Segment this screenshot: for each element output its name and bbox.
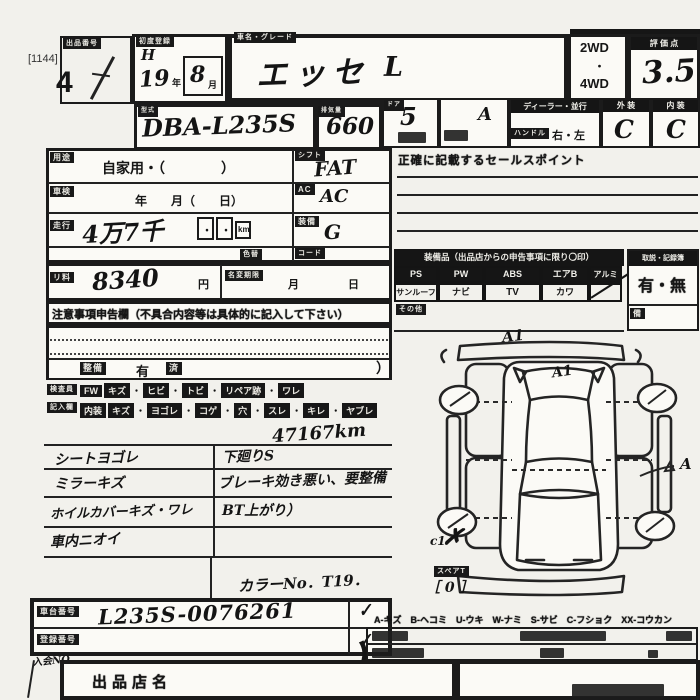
inspector-label-1: 検査員 <box>47 384 77 395</box>
illegible-label-smudge <box>648 650 658 658</box>
mileage-digit-dot: ・ <box>221 222 231 237</box>
print-ref: [1144] <box>28 53 58 65</box>
interior-item: コゲ <box>195 403 221 418</box>
doors-value: 5 <box>400 102 417 131</box>
name-change-label: 名変期限 <box>225 270 263 281</box>
mileage-value: 4万7千 <box>81 211 164 250</box>
grade-value: L <box>384 52 403 83</box>
sales-rule-line <box>397 230 698 232</box>
shift-value: FAT <box>313 155 357 182</box>
exterior-grade-value: C <box>614 115 634 144</box>
code-label: コード <box>295 248 325 259</box>
equipment-abs: ABS <box>484 266 541 283</box>
illegible-label-smudge <box>398 132 426 143</box>
sales-rule-line <box>397 194 698 196</box>
note-left: シートヨゴレ <box>54 447 139 470</box>
info-row-divider <box>48 182 390 184</box>
color-no-tick <box>210 558 212 600</box>
interior-item: スレ <box>264 403 290 418</box>
reg-month-unit: 月 <box>208 78 217 91</box>
ac-value: AC <box>320 186 348 207</box>
drive-2wd-label: 2WD <box>580 40 609 55</box>
mileage-label: 走行 <box>50 220 74 231</box>
registration-number-label: 登録番号 <box>37 634 79 645</box>
capacity-value: A <box>478 104 492 125</box>
equipment-sunroof: サンルーフ <box>394 283 438 302</box>
member-no-stroke <box>27 660 35 698</box>
interior-checklist-row: 内装 キズ ・ ヨゴレ ・ コゲ ・ 穴 ・ スレ ・ キレ ・ ヤブレ <box>80 403 379 418</box>
color-change-label: 色替 <box>240 249 262 260</box>
illegible-label-smudge <box>572 684 664 697</box>
equipment-header: 装備品（出品店からの申告事項に限り〇印） <box>394 249 624 266</box>
info-col-divider <box>292 150 294 261</box>
note-left: 車内ニオイ <box>50 528 121 552</box>
equipment-other-label: その他 <box>396 304 426 315</box>
name-change-month-unit: 月 <box>288 276 299 292</box>
equipment-navi: ナビ <box>438 283 484 302</box>
exhibitor-label: 出品店名 <box>92 671 172 692</box>
auction-sheet: { "top": { "print_ref": "[1144]", "lot_l… <box>0 0 700 700</box>
damage-legend: A-キズ B-ヘコミ U-ウキ W-ナミ S-サビ C-フショク XX-コウカン <box>374 613 672 626</box>
interior-item: ヨゴレ <box>147 403 182 418</box>
remarks-rule <box>50 353 388 355</box>
drive-dot: ・ <box>594 58 605 74</box>
manual-note-label: 備 <box>630 308 645 319</box>
recycle-fee-value: 8340 <box>91 263 160 297</box>
recycle-fee-label: リ料 <box>50 272 74 283</box>
color-no-note: カラーNo．T19． <box>238 569 370 597</box>
lot-number-label: 出品番号 <box>63 38 101 49</box>
equipment-pw: PW <box>438 266 484 283</box>
reg-era-value: H <box>141 46 155 64</box>
interior-grade-label: 内 装 <box>653 100 698 112</box>
note-right: ブレーキ効き悪い、要整備 <box>218 467 387 493</box>
fw-checklist-row: FW キズ ・ ヒビ ・ トビ ・ リペア跡 ・ ワレ <box>80 383 306 398</box>
notes-rule <box>44 526 392 528</box>
mileage-unit: km <box>238 225 250 234</box>
fw-item: キズ <box>104 383 130 398</box>
maintenance-value2: 済 <box>166 362 182 375</box>
shaken-label: 車検 <box>50 186 74 197</box>
equipment-slash-mark: ／ <box>590 261 624 308</box>
reg-year-value: 19 <box>138 65 170 93</box>
repair-close-paren: ） <box>376 358 390 378</box>
score-value: 3.5 <box>641 53 697 92</box>
repair-row-divider <box>48 358 390 360</box>
chassis-number-label: 車台番号 <box>37 606 79 617</box>
interior-label: 内装 <box>80 403 106 418</box>
sales-rule-line <box>397 212 698 214</box>
notes-rule <box>44 444 392 446</box>
model-code-value: DBA-L235S <box>142 108 297 142</box>
notes-rule <box>44 556 392 558</box>
diagram-corner-cross: ✗ <box>442 521 465 552</box>
interior-item: ヤブレ <box>342 403 377 418</box>
admin-grid-divider <box>368 643 696 645</box>
dealer-label: ディーラー・並行 <box>511 100 599 113</box>
note-left: ミラーキズ <box>54 472 124 493</box>
diagram-mark-windshield: A1 <box>551 363 574 382</box>
fw-item: リペア跡 <box>221 383 265 398</box>
recycle-col-divider <box>220 265 222 299</box>
note-right: 下廻りS <box>222 445 275 467</box>
maintenance-value: 有 <box>136 361 149 380</box>
car-name-label: 車名・グレード <box>234 32 296 43</box>
diagram-mark-side: A <box>680 455 692 473</box>
usage-label: 用途 <box>50 152 74 163</box>
ac-label: AC <box>295 184 315 195</box>
score-header: 評 価 点 <box>631 37 697 50</box>
interior-grade-value: C <box>666 115 686 144</box>
manual-divider <box>629 304 697 306</box>
note-right: BT上がり） <box>222 500 300 520</box>
notes-col-divider <box>213 444 215 558</box>
drive-4wd-label: 4WD <box>580 76 609 91</box>
equipment-airbag: エアB <box>541 266 589 283</box>
reg-year-unit: 年 <box>172 76 181 89</box>
spare-tire-value: ［ 0 ］ <box>426 577 474 597</box>
chassis-row-divider <box>33 627 389 629</box>
notice-banner-text: 注意事項申告欄（不具合内容等は具体的に記入して下さい） <box>52 306 349 322</box>
recycle-fee-unit: 円 <box>198 276 209 292</box>
spare-tire-label: スペアT <box>434 566 469 577</box>
maintenance-label: 整備 <box>80 362 106 375</box>
sales-point-banner: 正確に記載するセールスポイント <box>398 152 586 168</box>
interior-item: 穴 <box>234 403 251 418</box>
displacement-value: 660 <box>326 113 374 140</box>
equipment-row-2: サンルーフ ナビ TV カワ <box>394 283 622 302</box>
exterior-grade-label: 外 装 <box>603 100 649 112</box>
illegible-label-smudge <box>520 631 606 641</box>
equipment-leather: カワ <box>541 283 589 302</box>
handle-value: 右・左 <box>552 127 585 143</box>
inspector-label-2: 記入欄 <box>47 402 77 413</box>
usage-value: 自家用・（ ） <box>102 158 235 178</box>
lot-number-value: 4 <box>56 66 73 100</box>
handle-label: ハンドル <box>511 128 549 139</box>
equipment-tv: TV <box>484 283 541 302</box>
equipment-ps: PS <box>394 266 438 283</box>
mileage-digit-dot: ・ <box>202 222 212 237</box>
interior-item: キレ <box>303 403 329 418</box>
fw-item: ヒビ <box>143 383 169 398</box>
interior-item: キズ <box>108 403 134 418</box>
note-left: ホイルカバーキズ・ワレ <box>50 499 193 523</box>
illegible-label-smudge <box>666 631 692 641</box>
name-change-day-unit: 日 <box>348 276 359 292</box>
equip-label: 装備 <box>295 216 319 227</box>
illegible-label-smudge <box>444 130 468 141</box>
equipment-row-1: PS PW ABS エアB アルミ <box>394 266 622 283</box>
sales-rule-line <box>397 176 698 178</box>
fw-item: トビ <box>182 383 208 398</box>
illegible-label-smudge <box>540 648 564 658</box>
car-name-value: エッセ <box>255 46 371 95</box>
shaken-value: 年 月（ 日） <box>135 192 243 209</box>
equip-value: G <box>324 220 341 244</box>
manual-value: 有・無 <box>638 272 686 296</box>
fw-label: FW <box>80 385 102 397</box>
notes-rule <box>44 496 392 498</box>
remarks-rule <box>50 339 388 341</box>
fw-item: ワレ <box>278 383 304 398</box>
reg-month-value: 8 <box>190 62 205 88</box>
manual-header: 取説・記録簿 <box>629 251 697 266</box>
